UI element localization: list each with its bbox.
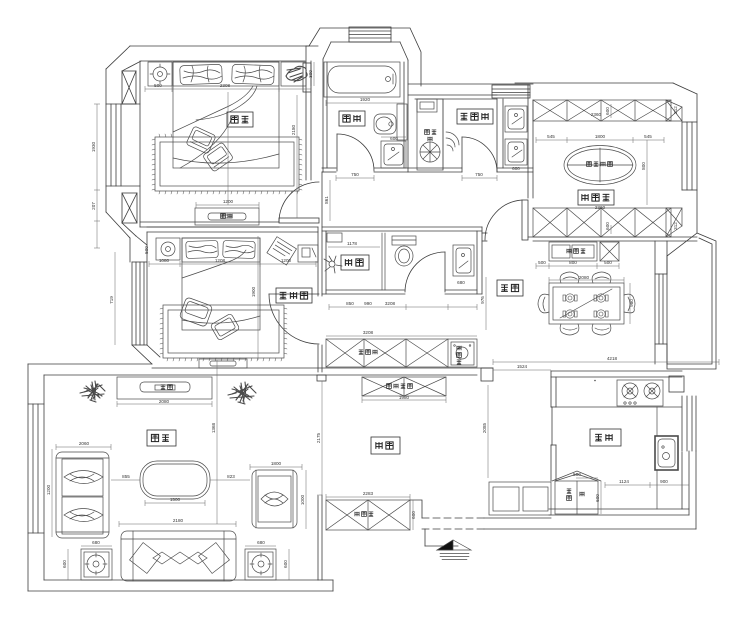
svg-text:500: 500	[604, 260, 612, 265]
svg-text:2180: 2180	[291, 124, 296, 135]
svg-text:2283: 2283	[363, 491, 374, 496]
svg-text:1500: 1500	[170, 497, 181, 502]
svg-text:2060: 2060	[79, 441, 90, 446]
svg-text:1900: 1900	[251, 286, 256, 297]
svg-text:2180: 2180	[173, 518, 184, 523]
svg-text:600: 600	[62, 560, 67, 568]
svg-text:823: 823	[227, 474, 235, 479]
svg-text:3208: 3208	[385, 301, 396, 306]
svg-text:800: 800	[569, 260, 577, 265]
svg-text:2080: 2080	[159, 399, 170, 404]
svg-text:600: 600	[605, 222, 610, 230]
svg-text:1000: 1000	[300, 494, 305, 505]
svg-text:500: 500	[144, 246, 149, 254]
svg-text:2360: 2360	[595, 205, 606, 210]
svg-text:2175: 2175	[316, 432, 321, 443]
svg-text:600: 600	[595, 494, 600, 502]
svg-text:500: 500	[154, 83, 162, 88]
svg-text:976: 976	[480, 296, 485, 304]
svg-text:4218: 4218	[607, 356, 618, 361]
svg-text:600: 600	[283, 560, 288, 568]
svg-text:1200: 1200	[46, 484, 51, 495]
svg-text:1200: 1200	[281, 258, 292, 263]
svg-text:1208: 1208	[215, 258, 226, 263]
svg-text:207: 207	[91, 202, 96, 210]
svg-text:980: 980	[629, 299, 634, 307]
svg-text:990: 990	[364, 301, 372, 306]
svg-text:300: 300	[308, 70, 313, 78]
svg-text:2308: 2308	[220, 83, 231, 88]
svg-text:680: 680	[92, 540, 100, 545]
svg-text:2080: 2080	[579, 275, 590, 280]
svg-text:800: 800	[641, 162, 646, 170]
svg-text:719: 719	[109, 296, 114, 304]
svg-text:3208: 3208	[363, 330, 374, 335]
svg-text:600: 600	[390, 136, 398, 141]
svg-text:855: 855	[122, 474, 130, 479]
svg-text:545: 545	[547, 134, 555, 139]
svg-text:1178: 1178	[347, 241, 357, 246]
svg-text:850: 850	[346, 301, 354, 306]
svg-text:861: 861	[324, 196, 329, 204]
svg-text:900: 900	[660, 479, 668, 484]
svg-text:600: 600	[512, 166, 520, 171]
svg-text:1800: 1800	[271, 461, 282, 466]
svg-text:680: 680	[257, 540, 265, 545]
svg-text:1800: 1800	[595, 134, 606, 139]
svg-text:2085: 2085	[482, 422, 487, 433]
svg-text:2360: 2360	[591, 112, 602, 117]
svg-text:1200: 1200	[223, 199, 234, 204]
svg-text:1524: 1524	[517, 364, 528, 369]
svg-text:500: 500	[538, 260, 546, 265]
svg-text:580: 580	[573, 472, 581, 477]
svg-text:750: 750	[475, 172, 483, 177]
svg-text:1930: 1930	[91, 141, 96, 152]
svg-text:680: 680	[457, 280, 465, 285]
svg-text:1368: 1368	[211, 422, 216, 433]
svg-text:1080: 1080	[159, 258, 170, 263]
svg-text:1920: 1920	[360, 97, 371, 102]
svg-text:600: 600	[605, 107, 610, 115]
svg-text:600: 600	[411, 511, 416, 519]
svg-text:1980: 1980	[399, 395, 410, 400]
svg-text:545: 545	[644, 134, 652, 139]
svg-text:312: 312	[673, 106, 678, 114]
svg-text:750: 750	[351, 172, 359, 177]
svg-text:312: 312	[673, 222, 678, 230]
svg-text:1124: 1124	[619, 479, 629, 484]
